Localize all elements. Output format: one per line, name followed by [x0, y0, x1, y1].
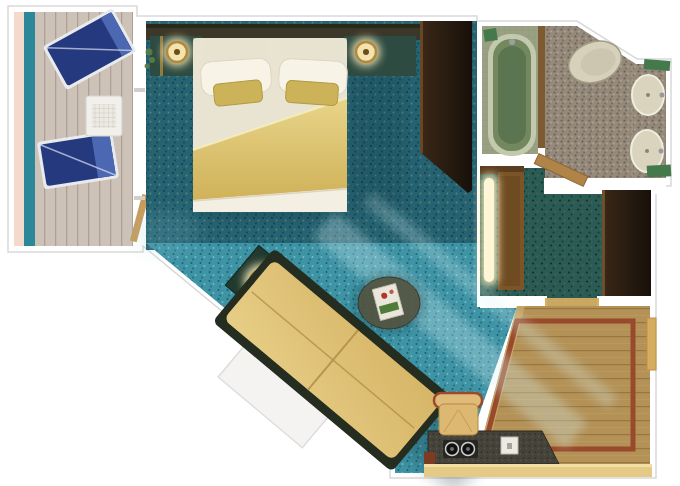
cabinet-front-highlight	[424, 464, 652, 467]
bathtub-basin	[498, 46, 526, 144]
sink-drain	[646, 93, 650, 97]
balcony-railing	[24, 12, 35, 246]
nightstand-lamp-right	[352, 38, 380, 66]
bathtub-faucet	[509, 39, 515, 45]
door-frame-tick	[134, 88, 145, 92]
green-mat	[647, 164, 672, 177]
lamp-finial	[174, 49, 180, 55]
wardrobe-edge-trim	[420, 21, 423, 153]
coffee-table	[353, 273, 425, 333]
pillow-gold-left	[213, 80, 263, 107]
closet-light-core	[484, 178, 494, 282]
king-bed	[193, 38, 348, 212]
balcony	[14, 8, 149, 246]
nightstand-lamp-left	[163, 38, 191, 66]
floor-plan	[0, 0, 680, 486]
hall-wardrobe	[602, 190, 651, 302]
desk-chair	[434, 393, 482, 435]
headboard-band-trim	[146, 24, 420, 28]
sink-drain	[645, 149, 649, 153]
green-mat	[483, 28, 498, 42]
desk-bottle-cap	[450, 447, 454, 451]
lamp-finial	[363, 49, 369, 55]
closet-wood-inner	[500, 176, 520, 286]
hall-wardrobe-edge	[602, 190, 605, 302]
desk-bottle-cap	[466, 447, 470, 451]
pillow-gold-right	[285, 80, 338, 106]
sink-top	[632, 75, 665, 115]
console-gold-trim	[160, 36, 163, 76]
carpet-light-pool	[129, 211, 201, 255]
balcony-side-table	[86, 96, 122, 136]
entry-threshold	[545, 298, 599, 307]
sink-faucet	[660, 93, 665, 98]
green-mat	[644, 59, 671, 71]
desk-telephone-detail	[507, 443, 512, 449]
entry-door	[647, 318, 656, 370]
sink-faucet	[659, 149, 664, 154]
bathtub	[488, 34, 536, 156]
bed-shadow	[348, 60, 404, 210]
floor-plan-canvas	[0, 0, 680, 486]
bathroom-divider-wall	[538, 26, 545, 148]
lighted-closet	[480, 166, 524, 290]
side-table-grid	[92, 104, 116, 128]
hall-wardrobe-body	[602, 190, 651, 302]
door-frame-tick	[134, 196, 145, 200]
wall-below-tub-room	[477, 154, 544, 168]
hull-edge	[14, 12, 24, 246]
